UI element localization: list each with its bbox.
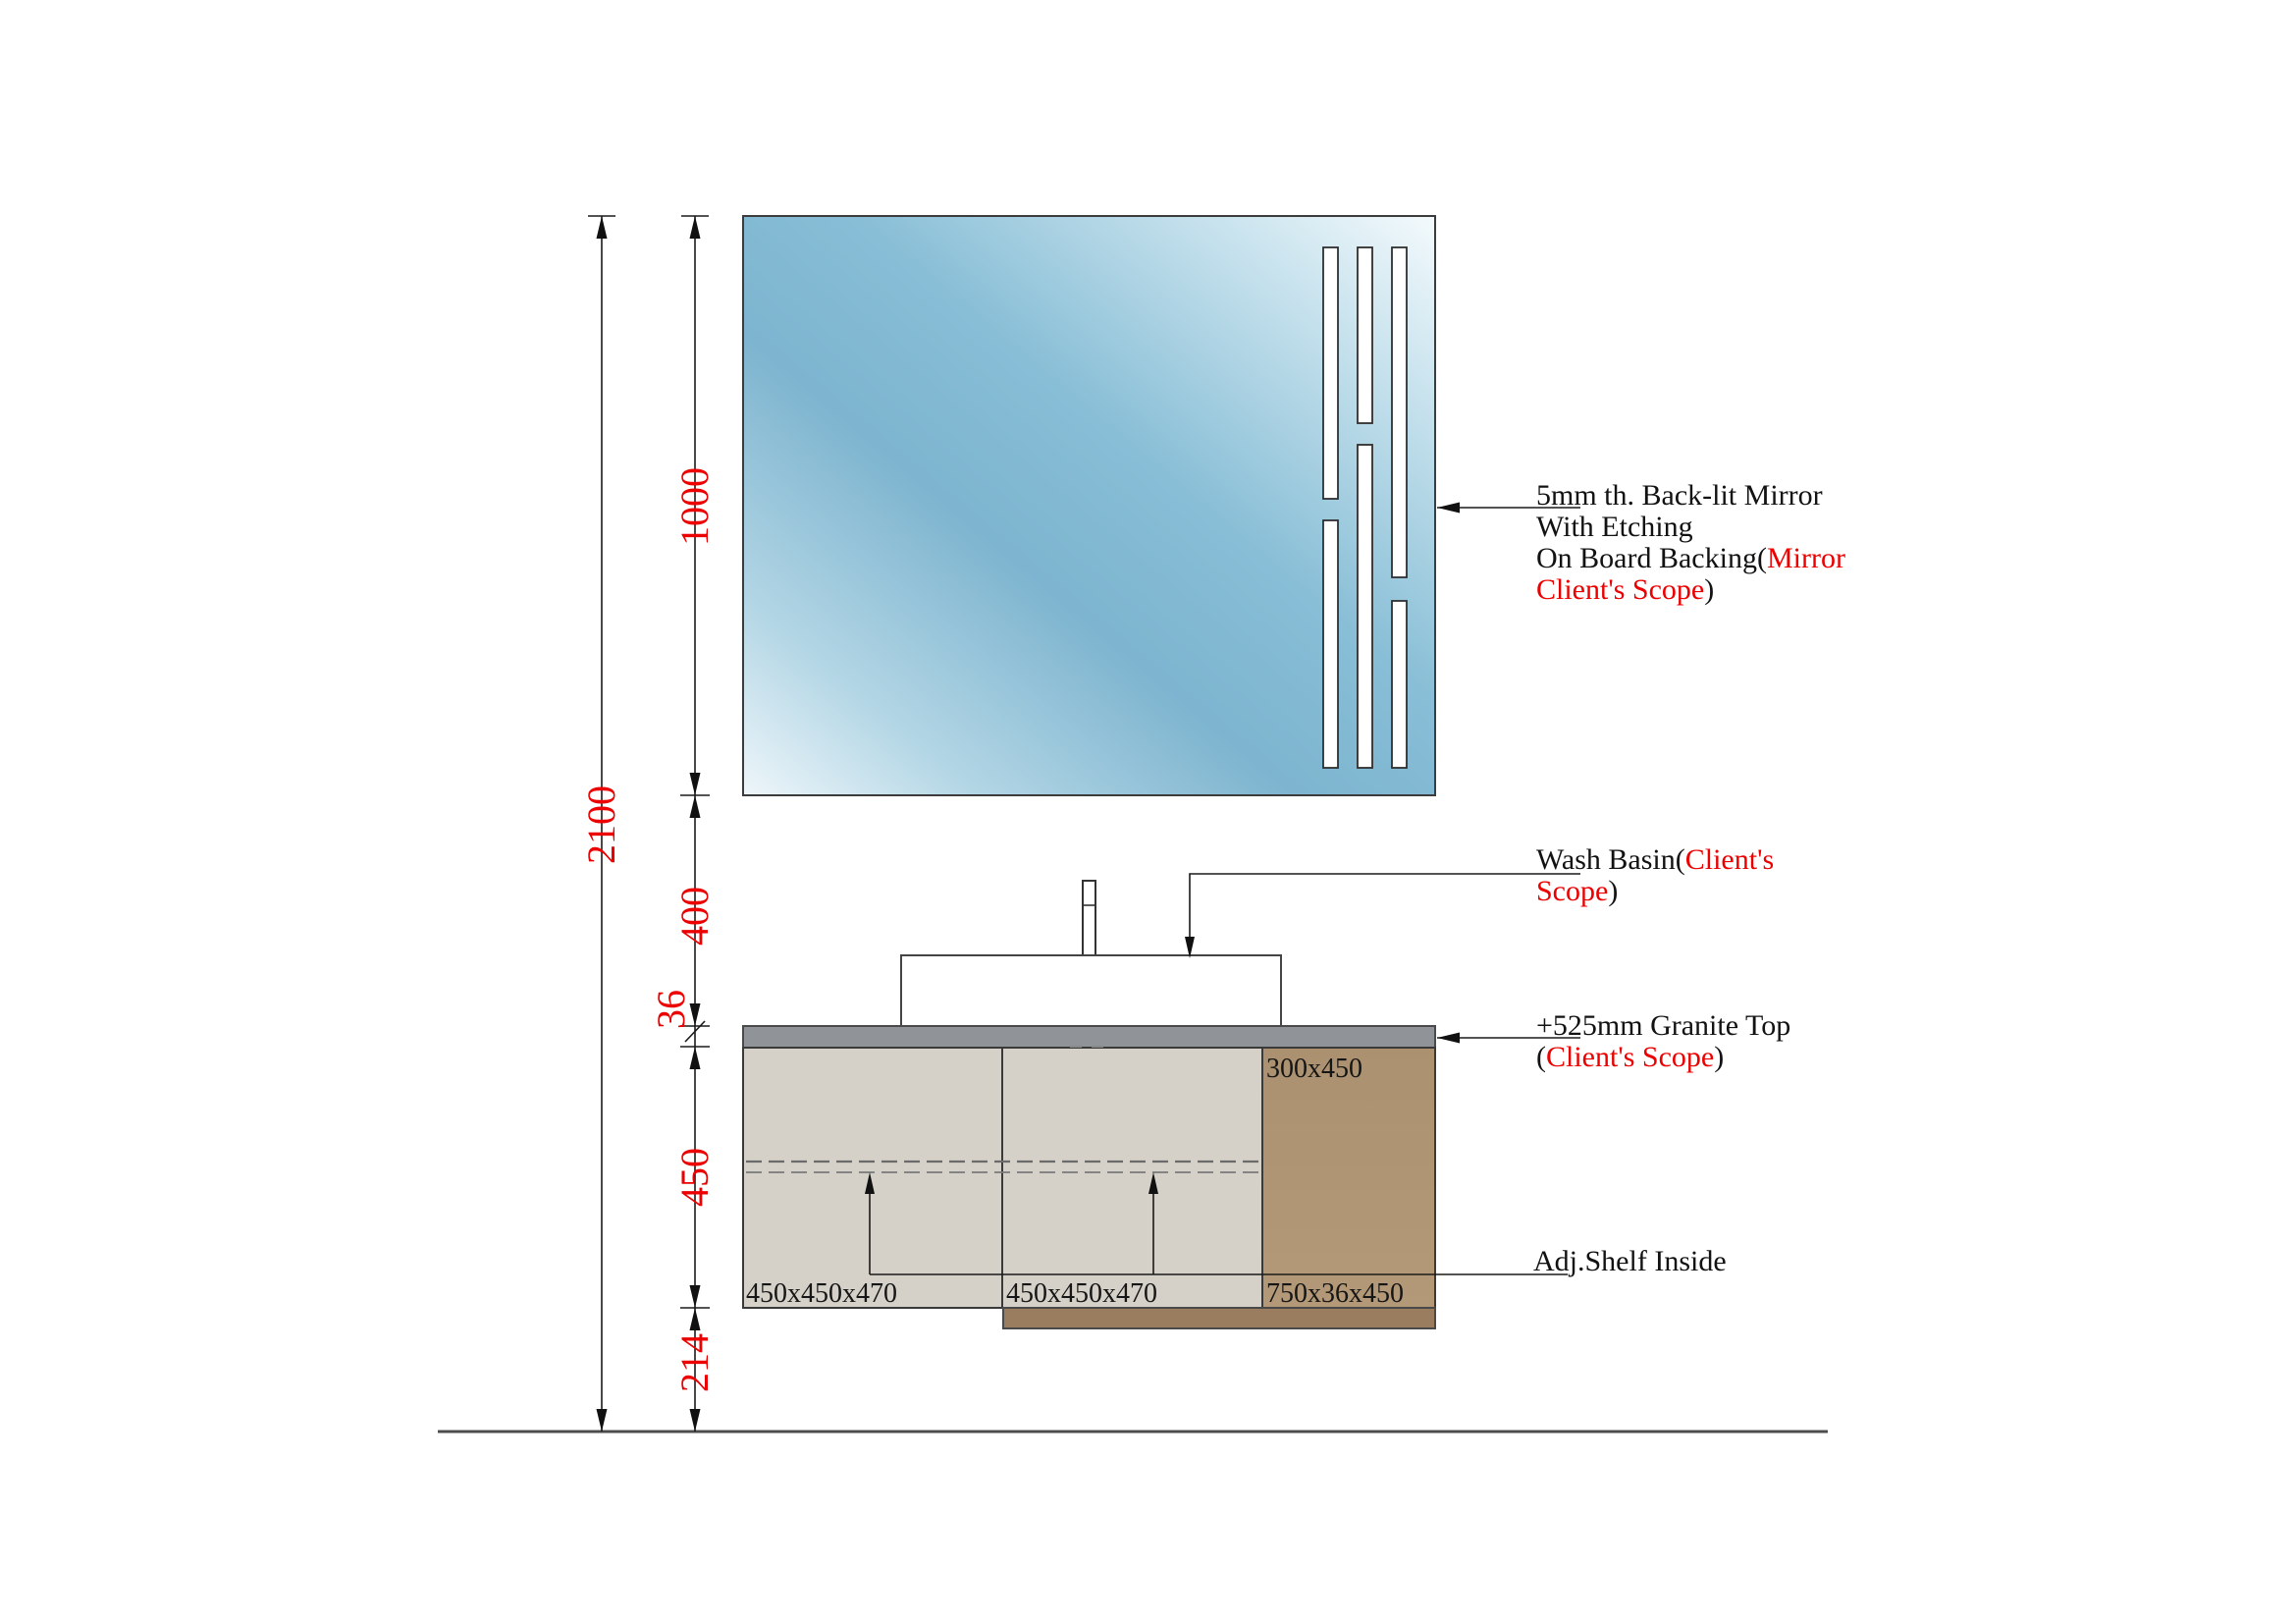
arrow-up (597, 216, 608, 239)
etching-bar (1323, 247, 1338, 499)
etching-bar (1323, 520, 1338, 768)
basin-note-line2: Scope) (1536, 875, 1618, 907)
etching-bar (1358, 445, 1372, 768)
elevation-drawing: 450x450x470 450x450x470 750x36x450 300x4… (0, 0, 2296, 1623)
leader-line (1190, 874, 1580, 939)
dimension-total-height: 2100 (579, 216, 623, 1432)
cabinet-label-side: 750x36x450 (1266, 1278, 1404, 1309)
arrow-up (690, 1308, 701, 1330)
basin-annotation: Wash Basin(Client's Scope) (1185, 843, 1774, 958)
etching-bar (1392, 601, 1407, 768)
basin-note-line1: Wash Basin(Client's (1536, 843, 1774, 876)
arrow-left (1437, 1033, 1460, 1044)
mirror-note-line1: 5mm th. Back-lit Mirror (1536, 479, 1823, 512)
dimension-chain: 1000 400 36 450 214 (649, 216, 717, 1432)
cabinet-plinth-strip (1003, 1308, 1435, 1328)
cabinet-label-mid: 450x450x470 (1006, 1278, 1157, 1309)
wash-basin (901, 881, 1281, 1026)
basin-body (901, 955, 1281, 1026)
dim-text-total: 2100 (579, 785, 623, 864)
shelf-note-text: Adj.Shelf Inside (1533, 1245, 1727, 1277)
arrow-up (690, 795, 701, 818)
granite-annotation: +525mm Granite Top (Client's Scope) (1437, 1009, 1790, 1073)
mirror-annotation: 5mm th. Back-lit Mirror With Etching On … (1437, 479, 1845, 606)
mirror-note-line4: Client's Scope) (1536, 573, 1714, 606)
arrow-down (597, 1409, 608, 1432)
vanity-cabinet: 450x450x470 450x450x470 750x36x450 300x4… (743, 1047, 1435, 1328)
arrow-left (1437, 503, 1460, 514)
granite-top (743, 1026, 1435, 1048)
backlit-mirror (743, 216, 1435, 795)
mirror-note-line2: With Etching (1536, 511, 1693, 543)
mirror-note-line3: On Board Backing(Mirror (1536, 542, 1845, 574)
granite-note-line2: (Client's Scope) (1536, 1041, 1724, 1073)
cabinet-side-panel (1262, 1048, 1435, 1308)
drawing-svg: 450x450x470 450x450x470 750x36x450 300x4… (0, 0, 2296, 1623)
dim-text-cabinet: 450 (672, 1148, 717, 1207)
arrow-down (690, 1409, 701, 1432)
arrow-up (690, 1047, 701, 1069)
cabinet-label-upper: 300x450 (1266, 1054, 1362, 1084)
dim-text-granite: 36 (649, 990, 693, 1029)
dim-text-gap: 400 (672, 887, 717, 946)
etching-bar (1358, 247, 1372, 423)
arrow-down (690, 773, 701, 795)
arrow-down (690, 1285, 701, 1308)
cabinet-label-left: 450x450x470 (746, 1278, 897, 1309)
granite-note-line1: +525mm Granite Top (1536, 1009, 1790, 1042)
arrow-up (690, 216, 701, 239)
faucet (1083, 881, 1095, 955)
dim-text-mirror: 1000 (672, 467, 717, 546)
dim-text-clearance: 214 (672, 1333, 717, 1392)
etching-bar (1392, 247, 1407, 577)
